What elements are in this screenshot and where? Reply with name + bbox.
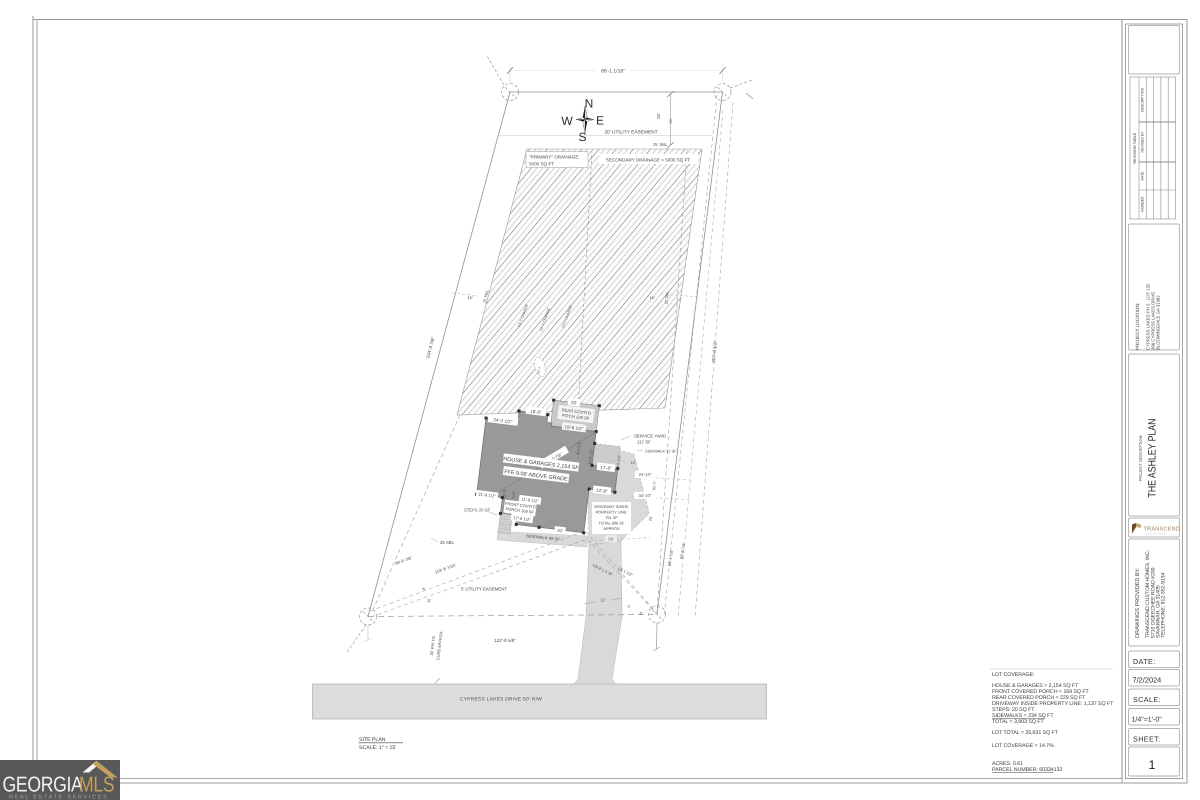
svg-text:LOT COVERAGE:: LOT COVERAGE: [992, 672, 1035, 678]
svg-text:24'-10": 24'-10" [639, 472, 652, 477]
svg-text:DRIVEWAY INSIDE: DRIVEWAY INSIDE [594, 504, 629, 509]
svg-text:7/2/2024: 7/2/2024 [1133, 676, 1162, 685]
svg-text:122'-8 5/8": 122'-8 5/8" [494, 638, 516, 643]
svg-text:REVISED BY: REVISED BY [1141, 131, 1145, 153]
svg-text:SHEET:: SHEET: [1133, 735, 1161, 744]
svg-text:SERVICE YARD: SERVICE YARD [634, 434, 666, 439]
svg-text:REVISION TABLE: REVISION TABLE [1133, 132, 1137, 163]
svg-text:TELEPHONE: 912-352-9134: TELEPHONE: 912-352-9134 [1161, 572, 1167, 638]
svg-text:REAL ESTATE SERVICES: REAL ESTATE SERVICES [9, 794, 109, 800]
svg-text:STEPS 20 SF: STEPS 20 SF [464, 508, 491, 513]
svg-text:20': 20' [656, 113, 661, 119]
svg-text:25 SBL: 25 SBL [440, 540, 455, 545]
svg-text:LOT TOTAL = 26,631 SQ FT: LOT TOTAL = 26,631 SQ FT [992, 730, 1059, 736]
svg-text:GEORGIA: GEORGIA [3, 773, 84, 797]
svg-text:1/4"=1'-0": 1/4"=1'-0" [1132, 716, 1163, 724]
svg-text:5' UTILITY EASEMENT: 5' UTILITY EASEMENT [461, 587, 507, 592]
svg-text:THE ASHLEY PLAN: THE ASHLEY PLAN [1147, 419, 1159, 498]
svg-text:BLOOMINGDALE GA 31302: BLOOMINGDALE GA 31302 [1156, 295, 1161, 350]
svg-text:E: E [596, 114, 604, 128]
svg-text:TRANSCEND: TRANSCEND [1144, 527, 1181, 533]
svg-text:86'-1 1/16": 86'-1 1/16" [601, 69, 625, 75]
svg-text:LOT COVERAGE = 14.7%: LOT COVERAGE = 14.7% [992, 743, 1054, 749]
svg-text:5000 SQ FT: 5000 SQ FT [529, 162, 554, 167]
svg-text:CUSTOM HOMES: CUSTOM HOMES [1146, 533, 1168, 536]
svg-text:W: W [561, 114, 573, 128]
svg-text:117 SF: 117 SF [637, 440, 651, 445]
svg-text:DESCRIPTION: DESCRIPTION [1141, 88, 1145, 112]
svg-text:TOTAL 806 SF: TOTAL 806 SF [599, 521, 625, 526]
svg-text:S: S [578, 130, 586, 144]
svg-text:70': 70' [648, 516, 654, 522]
svg-text:DATE: DATE [1141, 171, 1145, 181]
svg-text:25': 25' [669, 118, 673, 123]
svg-text:20' UTILITY EASEMENT: 20' UTILITY EASEMENT [604, 130, 657, 136]
svg-text:8': 8' [640, 612, 643, 616]
svg-text:16': 16' [649, 295, 654, 300]
svg-text:CYPRESS LAKES DRIVE 60' R/W: CYPRESS LAKES DRIVE 60' R/W [460, 697, 542, 703]
svg-text:TOTAL = 3,903 SQ FT: TOTAL = 3,903 SQ FT [992, 719, 1045, 725]
svg-text:PROJECT LOCATION:: PROJECT LOCATION: [1135, 303, 1140, 350]
svg-text:"PRIMARY" DRAINAGE: "PRIMARY" DRAINAGE [529, 155, 578, 160]
svg-text:751 SF: 751 SF [605, 515, 618, 520]
svg-text:12': 12' [630, 460, 635, 465]
svg-text:20': 20' [571, 400, 578, 406]
svg-text:58': 58' [608, 537, 614, 542]
svg-text:PORPERTY LINE:: PORPERTY LINE: [595, 510, 627, 515]
svg-text:NUMBER: NUMBER [1141, 196, 1145, 212]
svg-text:APPROX: APPROX [603, 526, 620, 531]
svg-text:12': 12' [600, 598, 606, 603]
svg-text:34'-10": 34'-10" [639, 493, 652, 498]
svg-text:DATE:: DATE: [1133, 657, 1156, 666]
svg-text:SIDEWALK 32 SF: SIDEWALK 32 SF [645, 449, 677, 454]
svg-text:20': 20' [557, 528, 563, 534]
svg-text:SCALE: 1" = 15': SCALE: 1" = 15' [359, 745, 396, 751]
svg-text:16': 16' [467, 295, 472, 300]
svg-text:1: 1 [1149, 758, 1156, 772]
svg-text:MLS: MLS [79, 773, 114, 797]
svg-text:DRAWINGS PROVIDED BY:: DRAWINGS PROVIDED BY: [1135, 567, 1141, 638]
svg-text:SCALE:: SCALE: [1133, 695, 1161, 704]
svg-text:N: N [585, 97, 594, 111]
svg-text:SITE PLAN: SITE PLAN [359, 737, 386, 743]
svg-text:SECONDARY DRAINAGE = 5000 SQ F: SECONDARY DRAINAGE = 5000 SQ FT [606, 158, 691, 163]
svg-text:PROJECT DESCRIPTION:: PROJECT DESCRIPTION: [1138, 435, 1143, 482]
svg-text:5': 5' [628, 605, 631, 609]
svg-text:25' SBL: 25' SBL [653, 142, 668, 147]
